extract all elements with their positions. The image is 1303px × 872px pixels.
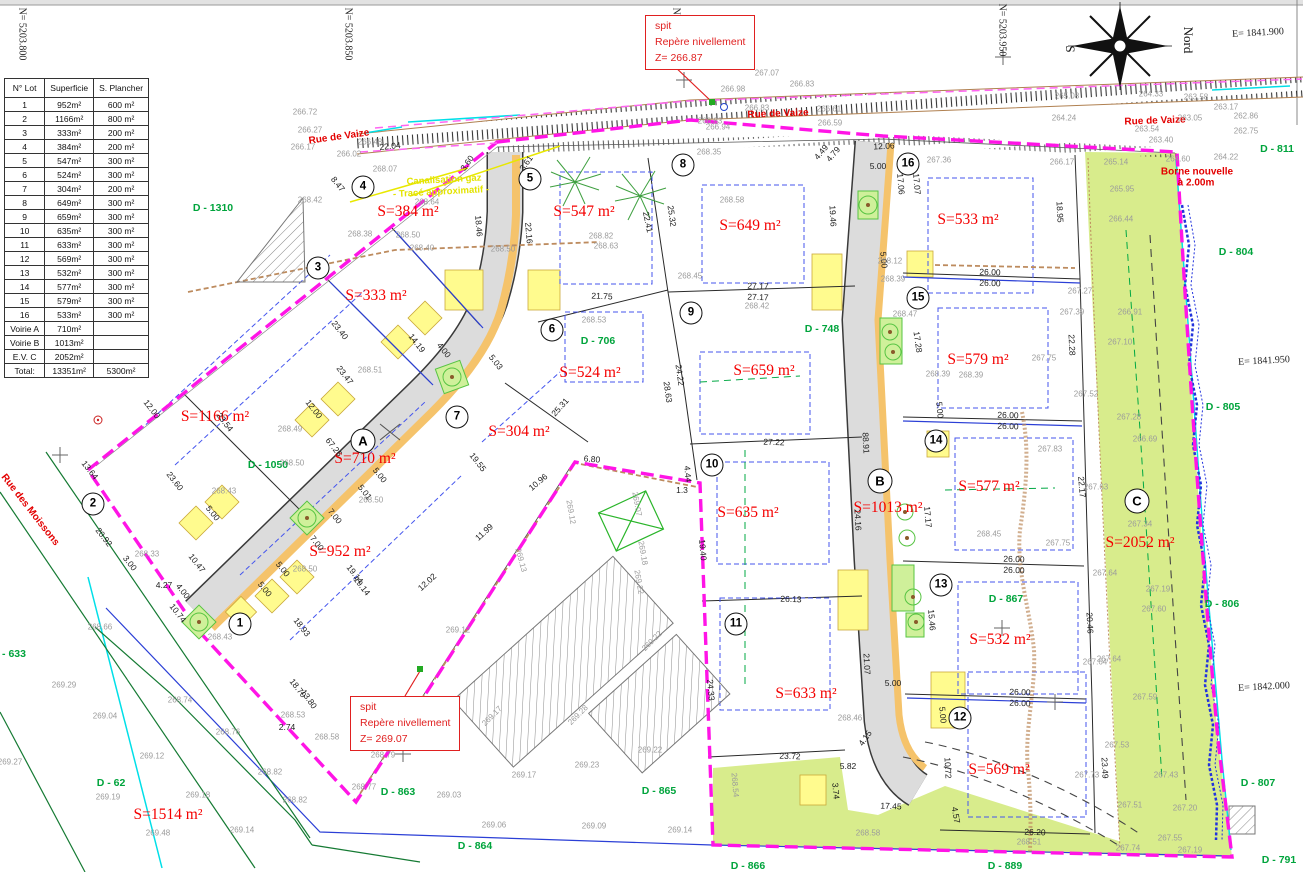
table-cell: 15 [5,294,45,308]
road-voirie-a [198,152,516,628]
table-cell [94,336,149,350]
table-cell: 659m² [45,210,94,224]
table-row: Voirie A710m² [5,322,149,336]
benchmark-line: Z= 266.87 [655,51,745,67]
table-cell: 300 m² [94,308,149,322]
property-lines [0,452,420,872]
table-cell: 13351m² [45,364,94,378]
table-cell: 300 m² [94,294,149,308]
table-cell: Voirie B [5,336,45,350]
table-row: 10635m²300 m² [5,224,149,238]
lot-table-col-header: N° Lot [5,79,45,98]
table-cell: 2 [5,112,45,126]
table-row: E.V. C2052m² [5,350,149,364]
table-cell: 6 [5,168,45,182]
structure-symbol [599,491,664,551]
benchmark-line: Repère nivellement [655,35,745,51]
table-cell: 533m² [45,308,94,322]
table-cell: 7 [5,182,45,196]
table-row: 7304m²200 m² [5,182,149,196]
table-row: 8649m²300 m² [5,196,149,210]
table-cell: 300 m² [94,154,149,168]
table-cell: Total: [5,364,45,378]
table-cell: 1 [5,98,45,112]
table-cell: 300 m² [94,168,149,182]
table-cell: 532m² [45,266,94,280]
table-cell: 710m² [45,322,94,336]
table-cell: 14 [5,280,45,294]
table-cell: 2052m² [45,350,94,364]
subdivision-plan: N° LotSuperficieS. Plancher 1952m²600 m²… [0,0,1303,872]
road-voirie-b [860,142,925,790]
table-row: 11633m²300 m² [5,238,149,252]
lot-table-col-header: S. Plancher [94,79,149,98]
table-cell: 4 [5,140,45,154]
table-cell: 8 [5,196,45,210]
table-cell: 300 m² [94,210,149,224]
table-cell: 635m² [45,224,94,238]
table-cell: Voirie A [5,322,45,336]
table-cell: 577m² [45,280,94,294]
table-cell: 1166m² [45,112,94,126]
table-row: 1952m²600 m² [5,98,149,112]
table-cell: 5300m² [94,364,149,378]
table-cell: 579m² [45,294,94,308]
table-row: 14577m²300 m² [5,280,149,294]
table-row: 16533m²300 m² [5,308,149,322]
table-row: 3333m²200 m² [5,126,149,140]
benchmark-note-top: spit Repère nivellement Z= 266.87 [645,15,755,70]
table-cell: 200 m² [94,140,149,154]
gas-pipeline-lines [350,146,560,202]
table-cell: 300 m² [94,252,149,266]
table-row: 13532m²300 m² [5,266,149,280]
compass-rose [1068,2,1172,90]
table-cell: 5 [5,154,45,168]
table-cell: 569m² [45,252,94,266]
existing-tree-icons [550,157,666,220]
lot-table-header: N° LotSuperficieS. Plancher [5,79,149,98]
table-cell: 300 m² [94,280,149,294]
table-row: 6524m²300 m² [5,168,149,182]
table-cell: 300 m² [94,238,149,252]
table-cell: 800 m² [94,112,149,126]
table-cell: 300 m² [94,266,149,280]
table-cell: 16 [5,308,45,322]
table-cell: E.V. C [5,350,45,364]
table-cell: 12 [5,252,45,266]
table-cell: 304m² [45,182,94,196]
table-cell: 300 m² [94,196,149,210]
table-cell: 200 m² [94,126,149,140]
table-cell [94,322,149,336]
table-cell: 547m² [45,154,94,168]
lot-lines [96,147,1095,834]
table-row: 5547m²300 m² [5,154,149,168]
table-cell: 9 [5,210,45,224]
table-cell: 384m² [45,140,94,154]
benchmark-line: Z= 269.07 [360,732,450,748]
lot-table-col-header: Superficie [45,79,94,98]
table-cell: 333m² [45,126,94,140]
table-cell: 13 [5,266,45,280]
table-cell: 633m² [45,238,94,252]
table-cell: 524m² [45,168,94,182]
table-cell: 600 m² [94,98,149,112]
table-row: 21166m²800 m² [5,112,149,126]
table-cell [94,350,149,364]
table-row: 12569m²300 m² [5,252,149,266]
table-row: 9659m²300 m² [5,210,149,224]
benchmark-line: Repère nivellement [360,716,450,732]
table-cell: 1013m² [45,336,94,350]
table-cell: 649m² [45,196,94,210]
lot-summary-table: N° LotSuperficieS. Plancher 1952m²600 m²… [4,78,149,378]
table-row: Total:13351m²5300m² [5,364,149,378]
table-cell: 952m² [45,98,94,112]
table-cell: 300 m² [94,224,149,238]
table-row: 15579m²300 m² [5,294,149,308]
benchmark-line: spit [655,19,745,35]
lot-table-body: 1952m²600 m²21166m²800 m²3333m²200 m²438… [5,98,149,378]
site-plan-drawing [0,0,1303,872]
table-cell: 11 [5,238,45,252]
green-space-areas [713,152,1232,857]
table-cell: 10 [5,224,45,238]
benchmark-line: spit [360,700,450,716]
table-row: 4384m²200 m² [5,140,149,154]
table-cell: 3 [5,126,45,140]
benchmark-note-bottom: spit Repère nivellement Z= 269.07 [350,696,460,751]
table-row: Voirie B1013m² [5,336,149,350]
table-cell: 200 m² [94,182,149,196]
